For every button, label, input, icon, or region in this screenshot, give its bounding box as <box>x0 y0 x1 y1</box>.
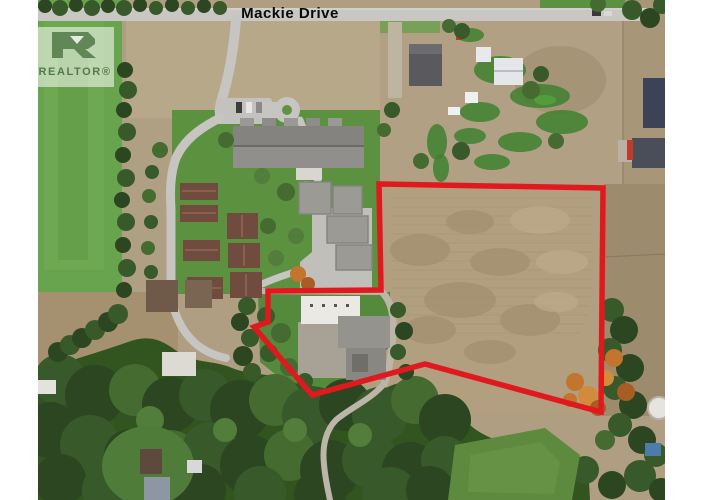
watermark-text: REALTOR® <box>38 66 111 78</box>
aerial-photo: Mackie Drive REALTOR® <box>0 0 701 500</box>
street-label: Mackie Drive <box>241 5 339 22</box>
listing-photo-frame: Mackie Drive REALTOR® <box>0 0 701 500</box>
realtor-watermark: REALTOR® <box>37 27 114 87</box>
